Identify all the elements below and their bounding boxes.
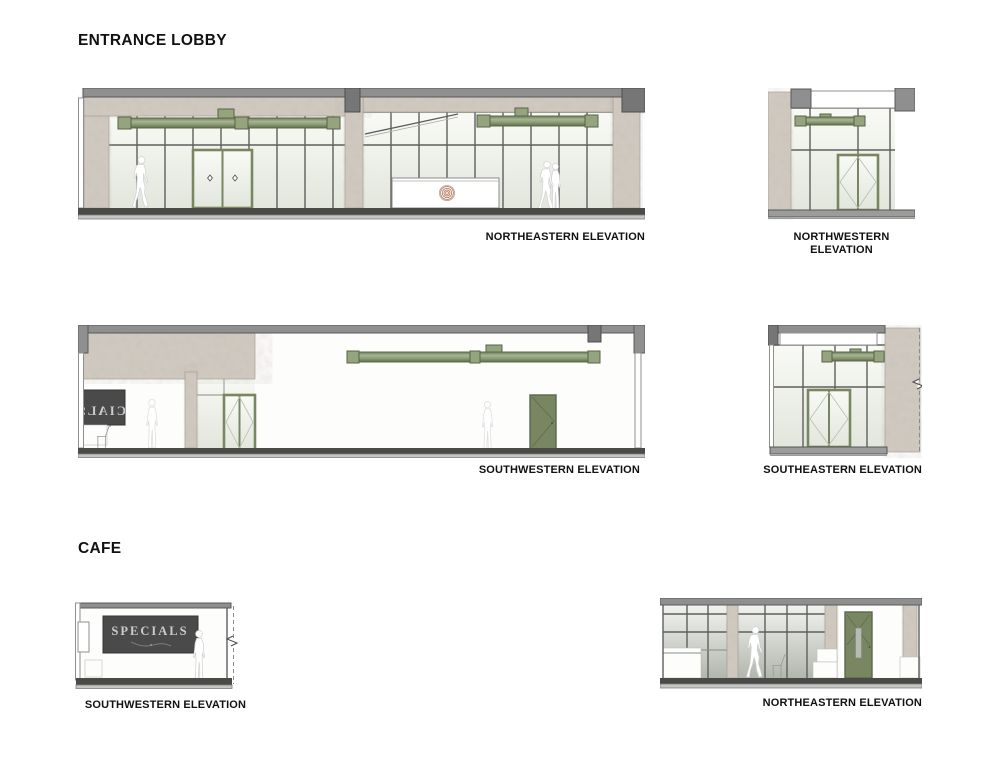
elevation-drawing-lobby-southeastern: [768, 325, 922, 458]
solid-green-door: [845, 612, 872, 678]
ceiling-band: [660, 598, 922, 605]
elevation-drawing-lobby-northeastern: [78, 88, 645, 220]
wall-section-edge: [770, 345, 774, 447]
glass-double-door: [224, 395, 255, 450]
suspended-beam: [795, 114, 865, 126]
floor-band: [78, 448, 645, 458]
label-cafe-southwestern: SOUTHWESTERN ELEVATION: [68, 699, 263, 712]
elevation-drawing-lobby-southwestern: SPECIALS: [78, 325, 645, 458]
section-title-entrance-lobby: ENTRANCE LOBBY: [78, 32, 227, 50]
solid-green-door: [530, 395, 556, 450]
specials-sign: SPECIALS: [103, 616, 198, 653]
floor-band: [660, 678, 922, 688]
wall-section-edge: [635, 353, 641, 448]
elevation-cafe-northeastern: [660, 598, 922, 690]
drawing-sheet: { "titles": { "lobby": "ENTRANCE LOBBY",…: [0, 0, 1000, 758]
door-vision-panel: [856, 628, 862, 658]
section-title-cafe: CAFE: [78, 540, 121, 558]
counter: [83, 425, 107, 445]
floor-band: [76, 678, 232, 689]
concrete-panel: [885, 328, 920, 452]
label-lobby-northeastern: NORTHEASTERN ELEVATION: [78, 231, 645, 244]
floor-band: [78, 208, 645, 219]
elevation-lobby-northeastern: [78, 88, 645, 220]
concrete-column: [768, 92, 791, 210]
elevation-lobby-southwestern: SPECIALS: [78, 325, 645, 458]
wall-jamb-detail: [78, 622, 89, 652]
wall-section-edge: [79, 353, 84, 448]
floor-band: [768, 210, 915, 219]
elevation-drawing-cafe-southwestern: SPECIALS: [75, 598, 240, 690]
elevation-cafe-southwestern: SPECIALS: [75, 598, 240, 690]
glass-double-door: [808, 390, 850, 447]
ceiling-band: [76, 603, 231, 608]
suspended-beam: [822, 349, 887, 362]
floor-band: [770, 447, 887, 456]
label-lobby-southwestern: SOUTHWESTERN ELEVATION: [78, 464, 640, 477]
glass-double-door: [838, 155, 878, 210]
label-lobby-southeastern: SOUTHEASTERN ELEVATION: [762, 464, 922, 477]
roof-cap-band: [768, 325, 885, 345]
label-lobby-northwestern: NORTHWESTERN ELEVATION: [768, 231, 915, 257]
roof-cap-band: [791, 88, 915, 111]
sign-text: SPECIALS: [111, 624, 188, 638]
wall-section-edge: [79, 98, 84, 208]
elevation-lobby-northwestern: [768, 88, 915, 220]
elevation-lobby-southeastern: [768, 325, 922, 458]
label-cafe-northeastern: NORTHEASTERN ELEVATION: [660, 697, 922, 710]
reception-desk: [392, 178, 499, 208]
elevation-drawing-cafe-northeastern: [660, 598, 922, 690]
glass-double-door: [193, 150, 252, 208]
counter: [85, 660, 102, 677]
elevation-drawing-lobby-northwestern: [768, 88, 915, 220]
